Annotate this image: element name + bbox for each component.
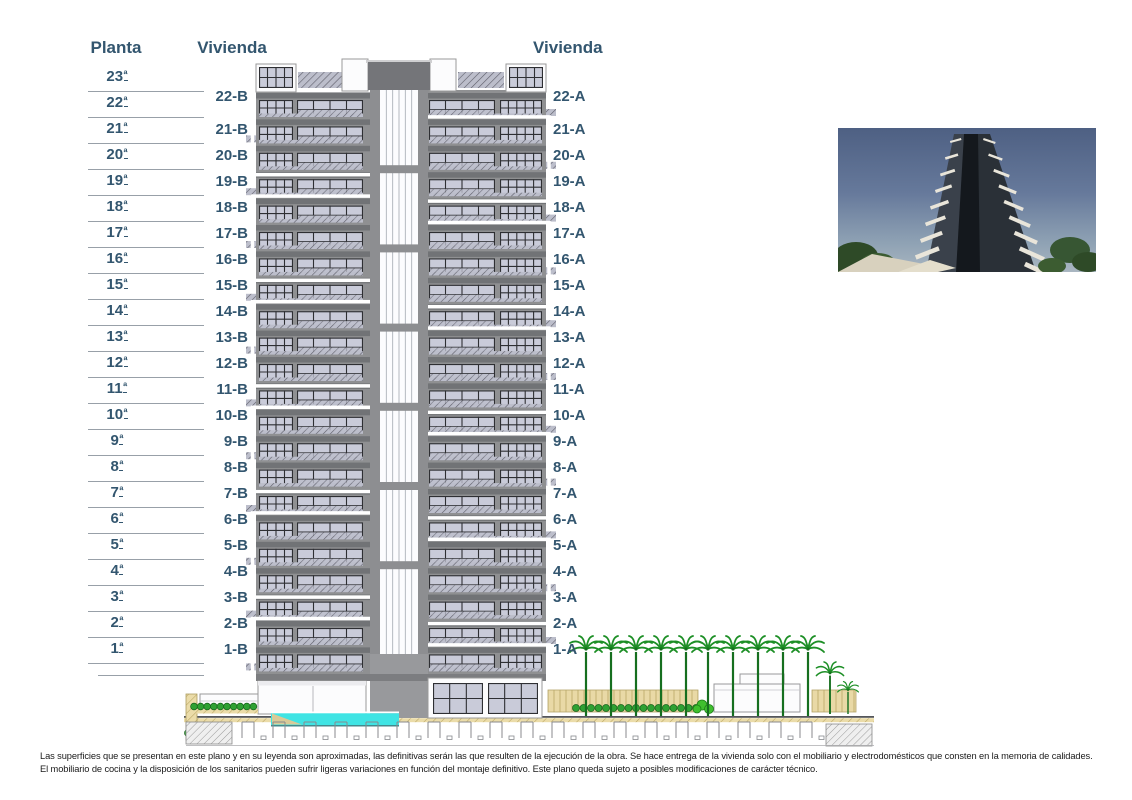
planta-label: 9ª: [85, 432, 149, 450]
vivienda-b-label[interactable]: 16-B: [198, 251, 248, 269]
row-divider: [88, 533, 204, 534]
vivienda-b-label[interactable]: 13-B: [198, 329, 248, 347]
row-divider: [88, 325, 204, 326]
planta-label: 15ª: [85, 276, 149, 294]
planta-label: 21ª: [85, 120, 149, 138]
vivienda-b-label[interactable]: 6-B: [198, 511, 248, 529]
planta-label: 10ª: [85, 406, 149, 424]
vivienda-a-label[interactable]: 5-A: [553, 537, 613, 555]
vivienda-a-label[interactable]: 12-A: [553, 355, 613, 373]
row-divider: [88, 429, 204, 430]
vivienda-a-label[interactable]: 17-A: [553, 225, 613, 243]
planta-label: 7ª: [85, 484, 149, 502]
floor-plan-page: Planta Vivienda Vivienda 23ª22ª21ª20ª19ª…: [0, 0, 1132, 800]
planta-label: 16ª: [85, 250, 149, 268]
vivienda-b-label[interactable]: 21-B: [198, 121, 248, 139]
row-divider: [88, 169, 204, 170]
vivienda-b-label[interactable]: 8-B: [198, 459, 248, 477]
planta-label: 20ª: [85, 146, 149, 164]
vivienda-a-label[interactable]: 4-A: [553, 563, 613, 581]
vivienda-a-label[interactable]: 13-A: [553, 329, 613, 347]
vivienda-b-label[interactable]: 14-B: [198, 303, 248, 321]
planta-label: 19ª: [85, 172, 149, 190]
planta-label: 12ª: [85, 354, 149, 372]
planta-label: 17ª: [85, 224, 149, 242]
vivienda-a-label[interactable]: 21-A: [553, 121, 613, 139]
row-divider: [98, 675, 204, 676]
tower-facade: [246, 59, 556, 718]
vivienda-a-label[interactable]: 22-A: [553, 88, 613, 106]
vivienda-b-label[interactable]: 12-B: [198, 355, 248, 373]
vivienda-a-label[interactable]: 11-A: [553, 381, 613, 399]
vivienda-b-label[interactable]: 3-B: [198, 589, 248, 607]
planta-label: 5ª: [85, 536, 149, 554]
elevation-svg: [0, 0, 1132, 800]
vivienda-a-label[interactable]: 6-A: [553, 511, 613, 529]
row-divider: [88, 143, 204, 144]
vivienda-b-label[interactable]: 9-B: [198, 433, 248, 451]
planta-label: 4ª: [85, 562, 149, 580]
vivienda-a-label[interactable]: 19-A: [553, 173, 613, 191]
vivienda-b-label[interactable]: 11-B: [198, 381, 248, 399]
row-divider: [88, 117, 204, 118]
right-terrace: [548, 674, 856, 714]
planta-label: 2ª: [85, 614, 149, 632]
vivienda-b-label[interactable]: 10-B: [198, 407, 248, 425]
row-divider: [88, 637, 204, 638]
vivienda-b-label[interactable]: 22-B: [198, 88, 248, 106]
vivienda-a-label[interactable]: 7-A: [553, 485, 613, 503]
photo-svg: [838, 128, 1096, 272]
planta-label: 22ª: [85, 94, 149, 112]
vivienda-a-label[interactable]: 15-A: [553, 277, 613, 295]
planta-label: 11ª: [85, 380, 149, 398]
planta-label: 6ª: [85, 510, 149, 528]
vivienda-left-header: Vivienda: [193, 38, 271, 60]
row-divider: [88, 273, 204, 274]
vivienda-b-label[interactable]: 1-B: [198, 641, 248, 659]
vivienda-b-label[interactable]: 15-B: [198, 277, 248, 295]
disclaimer-line-2: El mobiliario de cocina y la disposición…: [40, 763, 1120, 776]
row-divider: [88, 507, 204, 508]
vivienda-a-label[interactable]: 9-A: [553, 433, 613, 451]
vivienda-a-label[interactable]: 16-A: [553, 251, 613, 269]
row-divider: [88, 481, 204, 482]
vivienda-b-label[interactable]: 2-B: [198, 615, 248, 633]
planta-header: Planta: [85, 38, 147, 60]
planta-label: 1ª: [85, 640, 149, 658]
row-divider: [88, 247, 204, 248]
planta-label: 3ª: [85, 588, 149, 606]
building-photo: [838, 128, 1096, 272]
row-divider: [88, 663, 204, 664]
vivienda-right-header: Vivienda: [531, 38, 611, 60]
vivienda-b-label[interactable]: 7-B: [198, 485, 248, 503]
planta-label: 13ª: [85, 328, 149, 346]
row-divider: [88, 585, 204, 586]
vivienda-a-label[interactable]: 8-A: [553, 459, 613, 477]
building-elevation-drawing: [0, 0, 1132, 800]
disclaimer: Las superficies que se presentan en este…: [40, 750, 1120, 776]
vivienda-b-label[interactable]: 4-B: [198, 563, 248, 581]
vivienda-b-label[interactable]: 17-B: [198, 225, 248, 243]
row-divider: [88, 91, 204, 92]
disclaimer-line-1: Las superficies que se presentan en este…: [40, 750, 1120, 763]
vivienda-b-label[interactable]: 19-B: [198, 173, 248, 191]
vivienda-b-label[interactable]: 18-B: [198, 199, 248, 217]
row-divider: [88, 403, 204, 404]
vivienda-a-label[interactable]: 1-A: [553, 641, 613, 659]
row-divider: [88, 455, 204, 456]
vivienda-b-label[interactable]: 5-B: [198, 537, 248, 555]
planta-label: 8ª: [85, 458, 149, 476]
row-divider: [88, 299, 204, 300]
row-divider: [88, 221, 204, 222]
row-divider: [88, 559, 204, 560]
planta-label: 18ª: [85, 198, 149, 216]
row-divider: [88, 351, 204, 352]
row-divider: [88, 611, 204, 612]
vivienda-a-label[interactable]: 14-A: [553, 303, 613, 321]
row-divider: [88, 377, 204, 378]
vivienda-a-label[interactable]: 2-A: [553, 615, 613, 633]
vivienda-a-label[interactable]: 20-A: [553, 147, 613, 165]
vivienda-a-label[interactable]: 3-A: [553, 589, 613, 607]
planta-label: 14ª: [85, 302, 149, 320]
row-divider: [88, 195, 204, 196]
vivienda-b-label[interactable]: 20-B: [198, 147, 248, 165]
planta-label: 23ª: [85, 68, 149, 86]
vivienda-a-label[interactable]: 10-A: [553, 407, 613, 425]
vivienda-a-label[interactable]: 18-A: [553, 199, 613, 217]
